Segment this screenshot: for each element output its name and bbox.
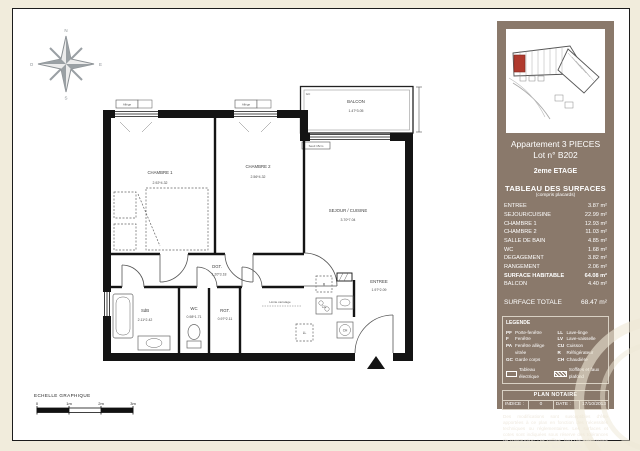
- table-row: SEJOUR/CUISINE22.99 m²: [504, 211, 607, 220]
- room-dim: 1.20*3.18: [212, 273, 227, 277]
- indice-value: 0: [528, 401, 552, 409]
- scale-tick-label: 3m: [130, 401, 136, 406]
- threshold-tag: Seuil 15cm: [302, 142, 330, 149]
- soffit-hatch-icon: [554, 371, 567, 377]
- legend-item: CHChaudière: [558, 357, 606, 364]
- legend-item: PAFenêtre allège vitrée: [506, 343, 554, 357]
- scale-tick-label: 2m: [98, 401, 104, 406]
- legend-item: LVLave-vaisselle: [558, 336, 606, 343]
- legend-soffites-label: Soffites et faux plafond: [569, 367, 605, 381]
- bathroom-window: [105, 292, 110, 316]
- room-dim: 1.47*3.05: [349, 109, 364, 113]
- tile-limit-label: Limite carrelage: [269, 300, 291, 304]
- room-label: CHAMBRE 1: [147, 170, 173, 175]
- scale-tick-label: 1m: [66, 401, 72, 406]
- room-label: RGT.: [220, 308, 230, 313]
- room-label: WC: [190, 306, 197, 311]
- table-row: RANGEMENT2.06 m²: [504, 263, 607, 272]
- highlighted-unit: [514, 55, 525, 72]
- habitable-surface-row: SURFACE HABITABLE64.08 m²: [504, 272, 607, 281]
- date-value: 17/10/2013: [579, 401, 608, 409]
- wardrobe: [114, 188, 208, 250]
- legend-right-column: LLLave-linge LVLave-vaisselle CUCuisson …: [558, 330, 606, 364]
- date-label: DATE :: [553, 401, 579, 409]
- scale-tick-label: 0: [36, 401, 39, 406]
- allege-tag-1: Allège: [116, 100, 152, 132]
- site-plan-thumbnail: [506, 29, 605, 133]
- table-row: DEGAGEMENT3.82 m²: [504, 254, 607, 263]
- plan-sheet: N S E O GC: [0, 0, 640, 451]
- legend-item: GCGarde corps: [506, 357, 554, 364]
- compass-west-label: O: [30, 62, 34, 67]
- surface-table-title: TABLEAU DES SURFACES: [497, 184, 614, 193]
- table-row: WC1.68 m²: [504, 246, 607, 255]
- window-2: [234, 112, 277, 117]
- svg-text:Allège: Allège: [242, 103, 251, 107]
- guardrail-label: GC: [306, 92, 311, 96]
- room-dim: 2.92*4.32: [153, 181, 168, 185]
- table-row: CHAMBRE 211.03 m²: [504, 228, 607, 237]
- room-dim: 2.56*4.32: [251, 175, 266, 179]
- surface-table-subtitle: (compris placards): [497, 193, 614, 198]
- apartment-type: Appartement 3 PIECES: [497, 139, 614, 150]
- compass-east-label: E: [99, 62, 102, 67]
- svg-text:Seuil 15cm: Seuil 15cm: [309, 144, 324, 148]
- room-label: ENTREE: [370, 279, 388, 284]
- legend-item: RRéfrigérateur: [558, 350, 606, 357]
- site-plan-drawing: [506, 29, 605, 133]
- surface-table: ENTREE3.87 m² SEJOUR/CUISINE22.99 m² CHA…: [504, 202, 607, 289]
- legend-item: LLLave-linge: [558, 330, 606, 337]
- cooktop-label: CU: [322, 305, 327, 309]
- disclaimer-text: Des modifications sont susceptibles d'êt…: [503, 414, 608, 451]
- legend-left-column: PFPorte-fenêtre FFenêtre PAFenêtre allèg…: [506, 330, 554, 364]
- sink-symbol: [337, 296, 353, 309]
- apartment-title: Appartement 3 PIECES Lot n° B202: [497, 139, 614, 160]
- toilet: [187, 325, 201, 349]
- compass-south-label: S: [64, 96, 67, 101]
- svg-text:Allège: Allège: [123, 103, 132, 107]
- table-row: SALLE DE BAIN4.85 m²: [504, 237, 607, 246]
- room-dim: 1.97*2.09: [372, 288, 387, 292]
- floor-label: 2eme ETAGE: [497, 168, 614, 175]
- bathtub: [113, 294, 170, 350]
- plan-notaire-title: PLAN NOTAIRE: [503, 391, 608, 401]
- legend-item: CUCuisson: [558, 343, 606, 350]
- scale-label: ECHELLE GRAPHIQUE: [34, 393, 91, 398]
- room-dim: 2.11*2.42: [138, 318, 153, 322]
- window-1: [115, 112, 158, 117]
- room-dim: 0.97*2.11: [218, 317, 233, 321]
- room-label: CHAMBRE 2: [245, 164, 271, 169]
- compass-north-label: N: [64, 28, 67, 33]
- room-dim: 0.98*1.71: [187, 315, 202, 319]
- indice-label: INDICE :: [503, 401, 528, 409]
- room-label: DGT.: [212, 264, 222, 269]
- electrical-panel-icon: [506, 371, 517, 377]
- room-label: BALCON: [347, 99, 365, 104]
- table-row: ENTREE3.87 m²: [504, 202, 607, 211]
- entry-marker-icon: [367, 356, 385, 369]
- washer-label: LL: [303, 331, 307, 335]
- legend-item: FFenêtre: [506, 336, 554, 343]
- legend-title: LEGENDE: [506, 320, 605, 328]
- allege-tag-2: Allège: [235, 100, 271, 132]
- balcony-surface-row: BALCON4.40 m²: [504, 280, 607, 289]
- legend-box: LEGENDE PFPorte-fenêtre FFenêtre PAFenêt…: [502, 316, 609, 384]
- outer-walls: [103, 110, 413, 361]
- room-label: SEJOUR / CUISINE: [329, 208, 368, 213]
- legend-item: PFPorte-fenêtre: [506, 330, 554, 337]
- boiler-label: CH: [343, 329, 348, 333]
- room-dim: 3.70*7.04: [341, 218, 356, 222]
- legend-tableau-label: Tableau électrique: [519, 367, 548, 381]
- floor-plan: GC: [90, 72, 440, 384]
- table-row: CHAMBRE 112.93 m²: [504, 220, 607, 229]
- info-sidebar: Appartement 3 PIECES Lot n° B202 2eme ET…: [497, 21, 614, 409]
- lot-number: Lot n° B202: [497, 150, 614, 161]
- plan-notaire-box: PLAN NOTAIRE INDICE : 0 DATE : 17/10/201…: [502, 390, 609, 410]
- scale-bar: ECHELLE GRAPHIQUE 0 1m 2m 3m: [33, 392, 145, 418]
- room-label: SdB: [141, 308, 149, 313]
- balcony-slider-window: [310, 135, 390, 140]
- total-surface-row: SURFACE TOTALE 68.47 m²: [504, 298, 607, 308]
